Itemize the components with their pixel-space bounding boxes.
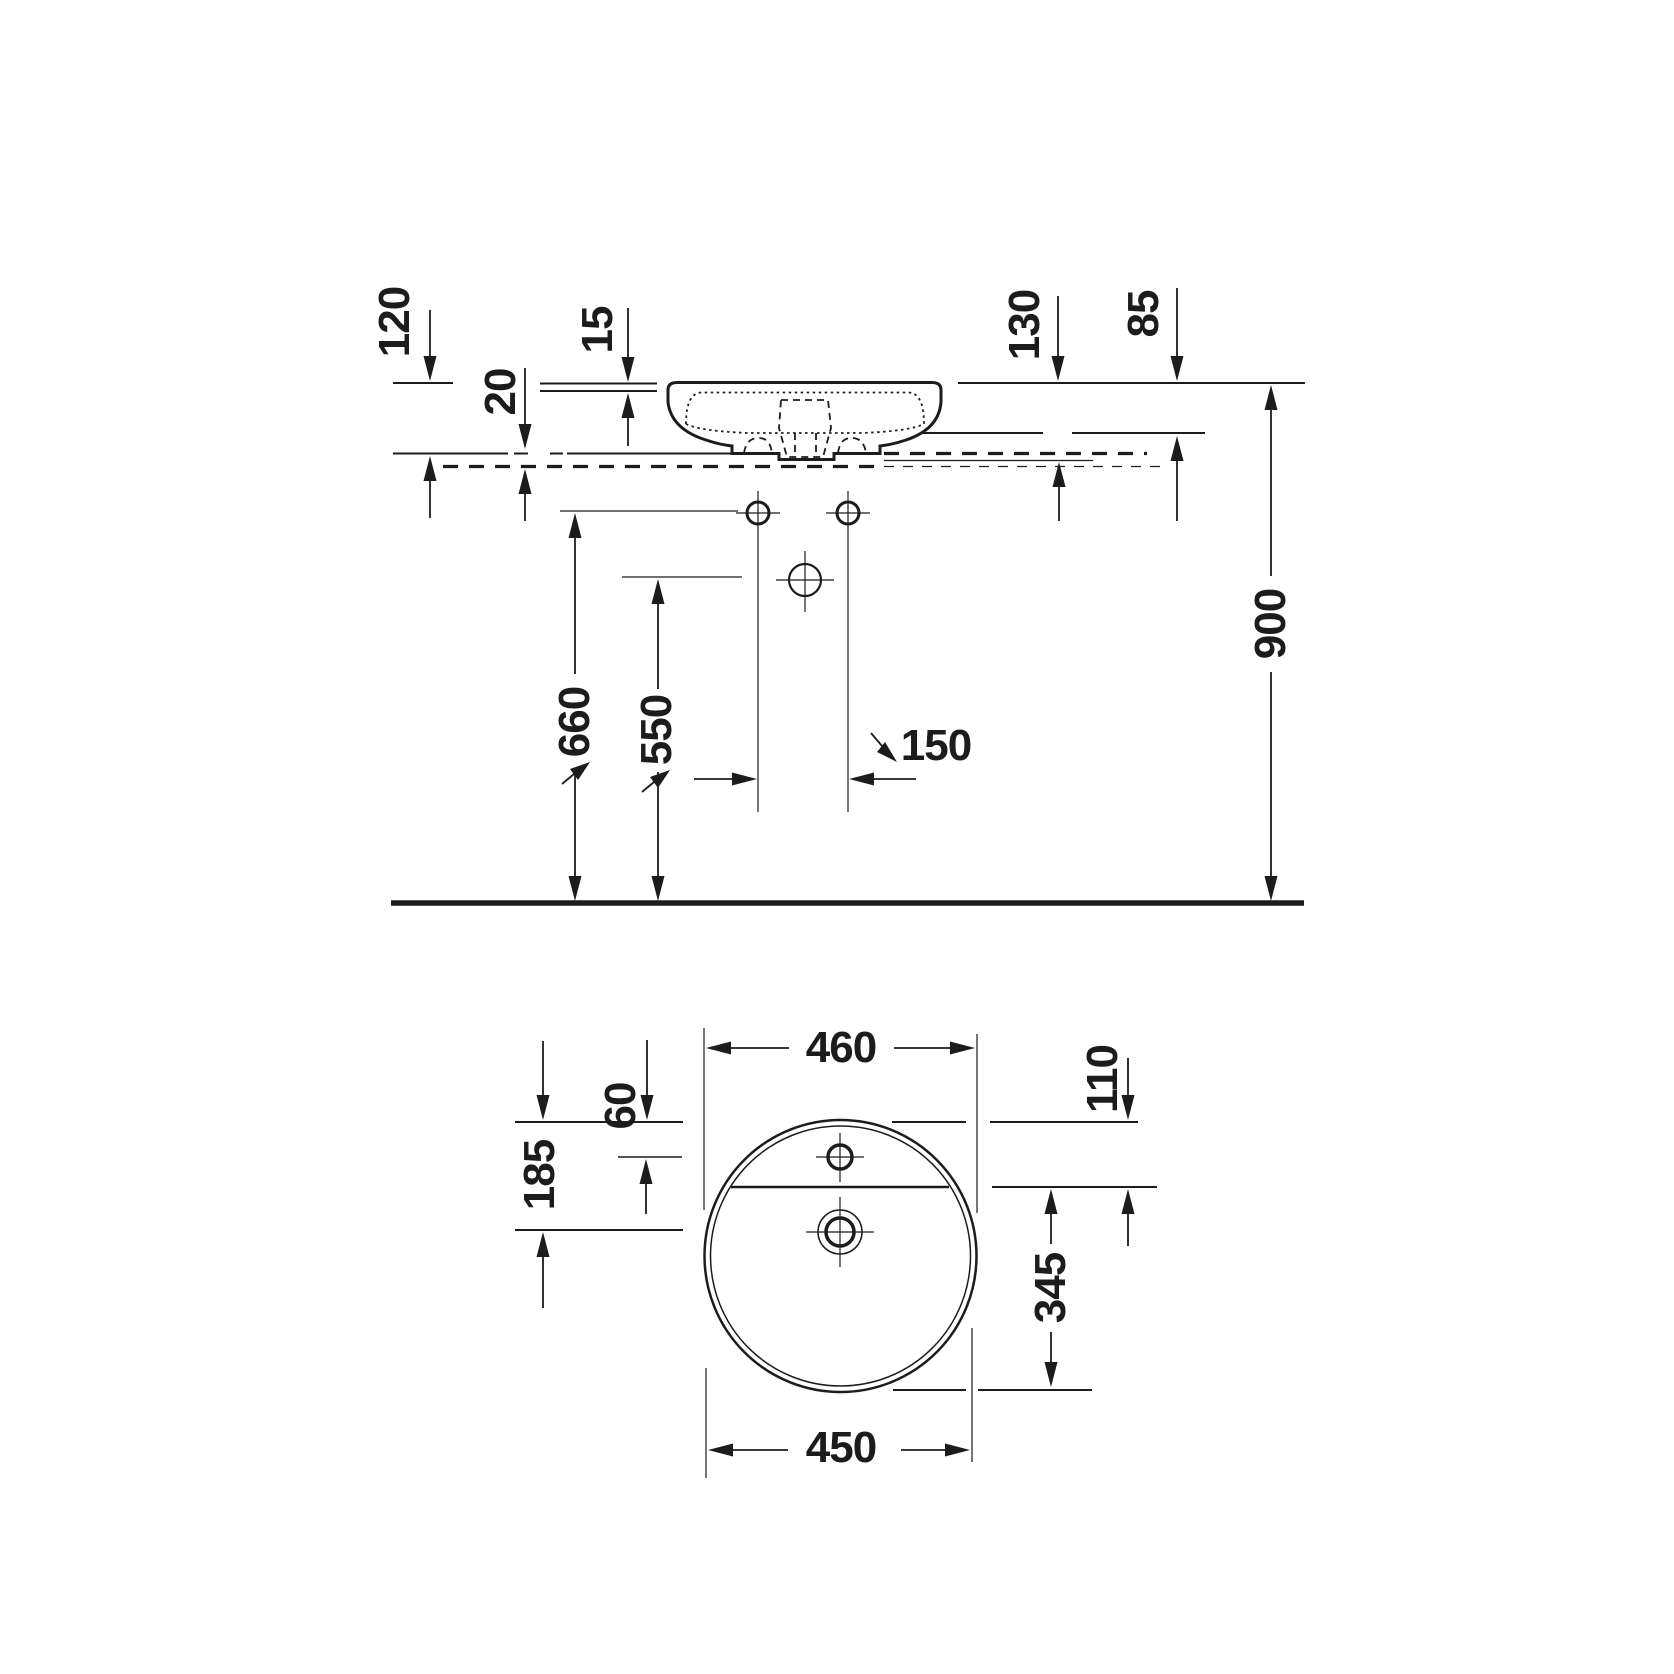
dimension-label-20: 20 [479,369,523,416]
basin-outer-outline [668,383,941,460]
dimension-label-60: 60 [599,1083,643,1130]
fixing-holes [736,491,870,812]
dimension-130 [1052,296,1066,521]
technical-drawing-page: 120 20 15 130 85 900 660 550 150 460 110… [0,0,1674,1674]
basin-side-profile [668,383,941,460]
dimension-label-15: 15 [576,307,620,354]
drain-hole-plan [806,1197,874,1267]
hole-centerlines [736,491,870,812]
dimension-15 [622,308,635,446]
dimension-120 [424,310,437,518]
dimension-150 [694,733,916,786]
drain-hole-centerlines [776,551,834,612]
dimension-label-460: 460 [806,1026,876,1070]
dimension-label-450: 450 [806,1426,876,1470]
dimension-label-345: 345 [1029,1253,1073,1323]
dimension-label-85: 85 [1122,291,1166,338]
dimension-label-120: 120 [373,287,417,357]
dimension-label-150: 150 [901,724,971,768]
dimension-label-550: 550 [635,695,679,765]
dimension-label-900: 900 [1249,589,1293,659]
dimension-label-130: 130 [1003,290,1047,360]
faucet-hole-plan [816,1133,864,1182]
dimension-label-110: 110 [1081,1045,1125,1113]
dimension-85 [1171,288,1184,521]
front-elevation-view [391,288,1305,903]
dimension-label-660: 660 [553,687,597,757]
dimension-label-185: 185 [518,1140,562,1210]
